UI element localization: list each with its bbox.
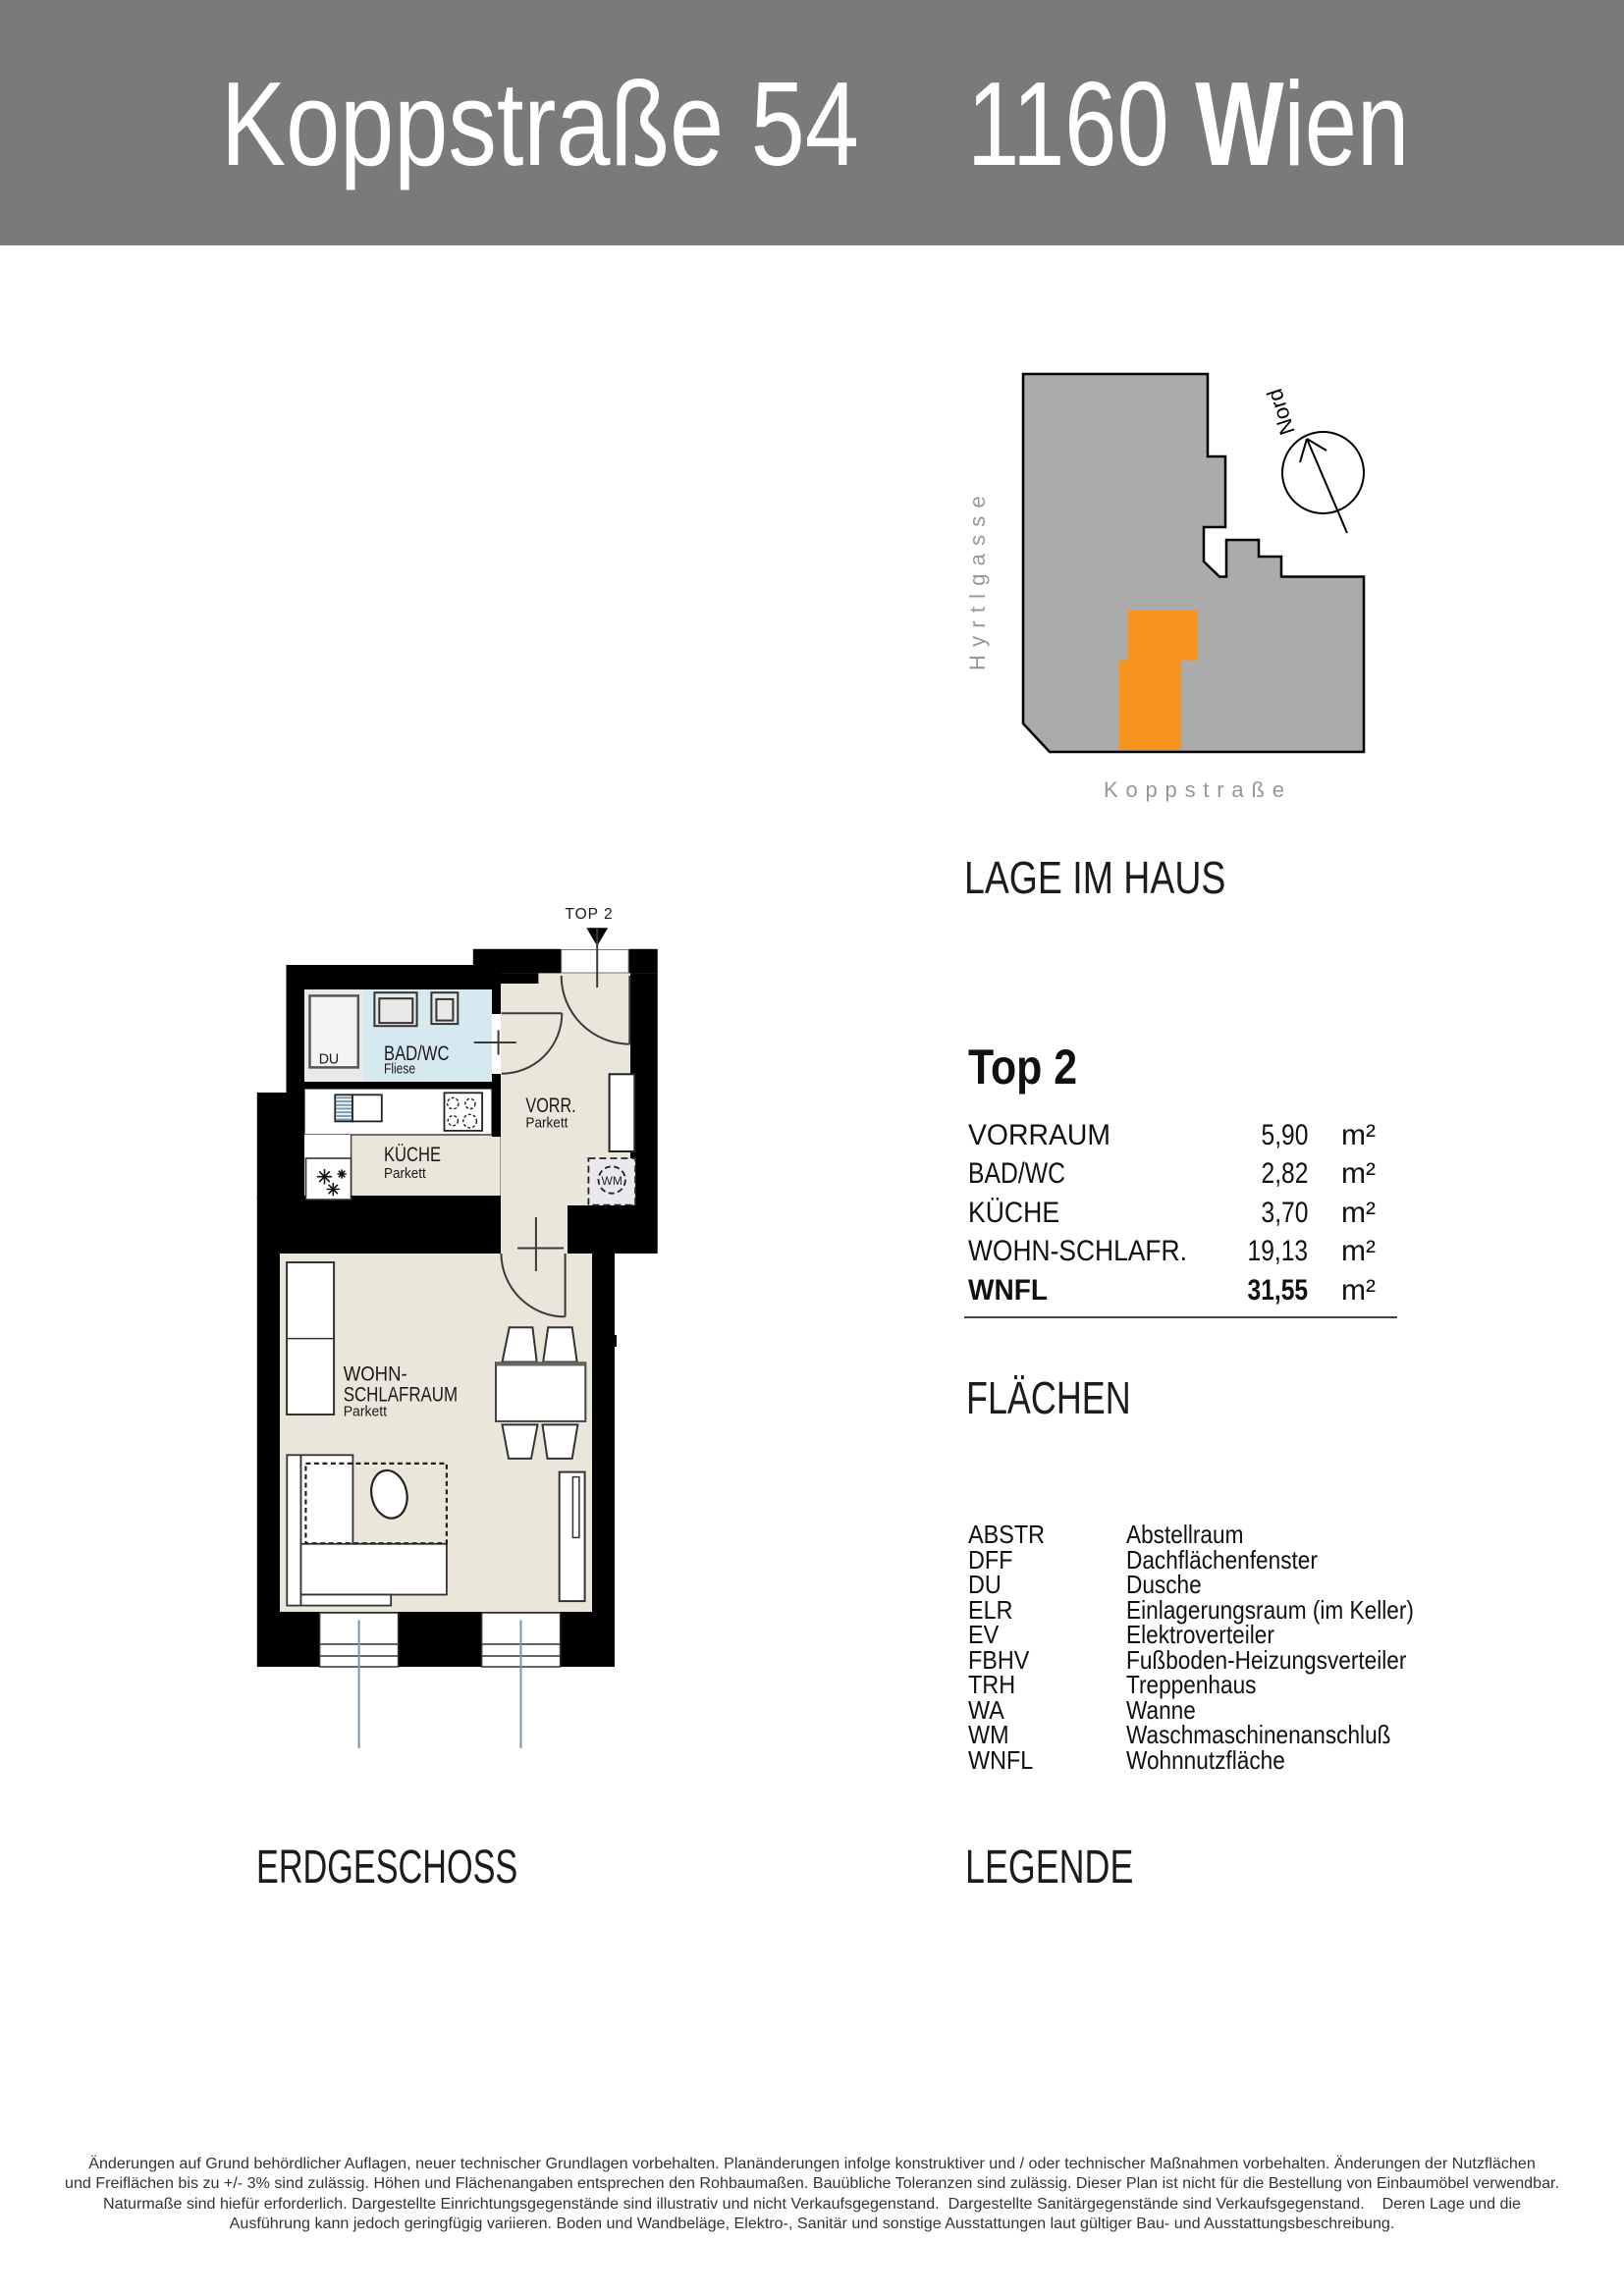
svg-text:Fliese: Fliese xyxy=(384,1061,415,1078)
svg-text:Parkett: Parkett xyxy=(344,1404,388,1420)
svg-text:DU: DU xyxy=(319,1052,340,1068)
svg-text:Parkett: Parkett xyxy=(384,1165,426,1182)
svg-text:TOP 2: TOP 2 xyxy=(565,906,613,923)
svg-text:Nord: Nord xyxy=(1262,386,1300,438)
svg-text:Hyrtlgasse: Hyrtlgasse xyxy=(965,488,990,670)
svg-text:Parkett: Parkett xyxy=(525,1115,568,1132)
svg-text:Koppstraße: Koppstraße xyxy=(1104,777,1292,802)
svg-text:WOHN-: WOHN- xyxy=(344,1363,407,1386)
svg-text:KÜCHE: KÜCHE xyxy=(384,1144,441,1166)
svg-text:WM: WM xyxy=(602,1174,623,1188)
